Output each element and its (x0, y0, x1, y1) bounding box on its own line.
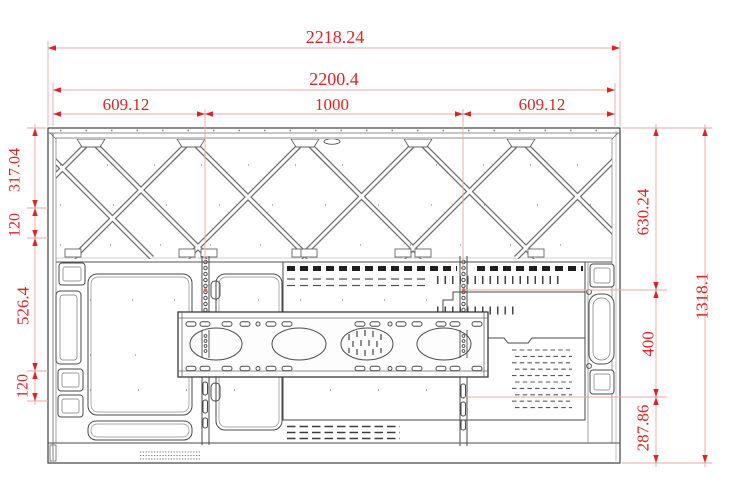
dimension-annotations: 2218.24 2200.4 609.12 1000 609.12 317.04… (7, 27, 713, 467)
wall-mount-bracket (178, 312, 488, 377)
perforated-vent-block (512, 350, 572, 408)
right-handle-brackets (587, 262, 614, 443)
lattice-ribs (0, 139, 639, 258)
technical-drawing: 2218.24 2200.4 609.12 1000 609.12 317.04… (0, 0, 750, 492)
dim-vesa-vertical: 400 (639, 331, 658, 357)
dim-total-width: 2218.24 (306, 27, 365, 47)
left-handle-brackets (56, 263, 85, 417)
dim-left-mid: 526.4 (14, 286, 33, 325)
dim-right-offset: 609.12 (519, 95, 566, 114)
vent-slot-row (287, 269, 583, 311)
dim-body-width: 2200.4 (309, 69, 359, 89)
dim-left-offset: 609.12 (103, 95, 150, 114)
speaker-grille (287, 427, 400, 439)
dim-right-top: 630.24 (634, 188, 653, 235)
drawing-canvas: 2218.24 2200.4 609.12 1000 609.12 317.04… (0, 0, 750, 492)
dim-center-span: 1000 (315, 95, 349, 114)
dim-left-gap-lower: 120 (15, 374, 32, 398)
panel-outline (48, 128, 620, 463)
dim-total-height: 1318.1 (693, 273, 712, 320)
dim-left-top: 317.04 (7, 148, 24, 192)
dim-left-gap-upper: 120 (7, 213, 24, 237)
dim-right-bottom: 287.86 (634, 405, 653, 452)
